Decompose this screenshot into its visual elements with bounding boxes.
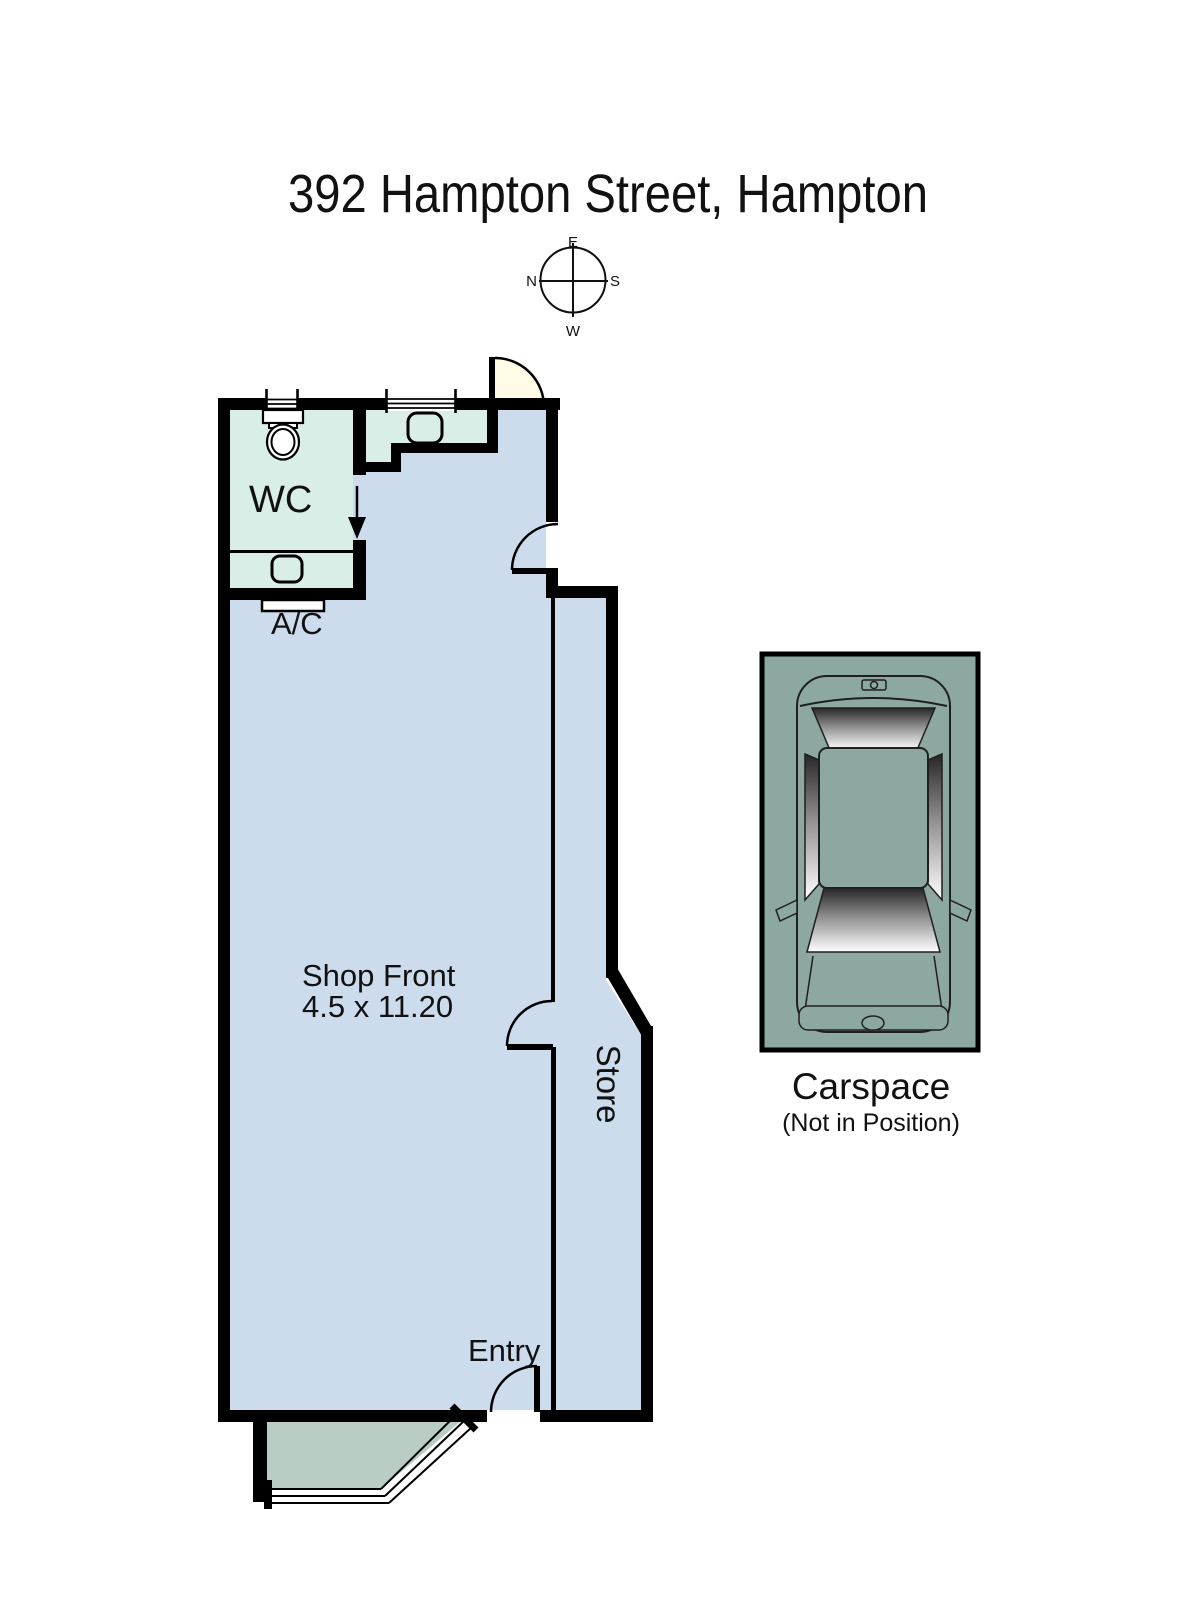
- shop-front-dimensions: 4.5 x 11.20: [302, 989, 453, 1024]
- vanity-bench-line: [230, 550, 353, 553]
- left-wall: [218, 398, 230, 1422]
- shop-front-label: Shop Front: [302, 958, 456, 993]
- car-icon: [776, 676, 971, 1032]
- wc-partition-lower: [353, 540, 366, 600]
- compass-label-right: S: [610, 273, 620, 290]
- carspace-note: (Not in Position): [782, 1109, 960, 1137]
- store-outer-wall-upper: [606, 586, 618, 978]
- bottom-wall-right: [540, 1410, 653, 1422]
- compass-label-left: N: [526, 273, 537, 290]
- page-title: 392 Hampton Street, Hampton: [288, 164, 928, 224]
- compass-label-top: E: [568, 234, 578, 251]
- carspace: Carspace (Not in Position): [762, 654, 978, 1137]
- kitchenette-step-wall-right: [391, 443, 498, 453]
- wc-label: WC: [249, 479, 312, 521]
- store-label: Store: [590, 1045, 627, 1124]
- compass-label-bottom: W: [566, 323, 581, 340]
- entry-porch-floor: [267, 1422, 460, 1489]
- top-door-jamb-wall: [487, 410, 498, 453]
- entry-label: Entry: [468, 1333, 541, 1368]
- store-outer-wall-lower: [641, 1026, 653, 1422]
- floorplan-page: 392 Hampton Street, Hampton E N S W: [0, 0, 1179, 1600]
- wc-bottom-wall: [218, 588, 362, 600]
- bottom-wall-left: [218, 1410, 487, 1422]
- compass: [539, 243, 608, 317]
- carspace-label: Carspace: [792, 1066, 950, 1107]
- window-kitchenette: [386, 389, 456, 413]
- floorplan-canvas: 392 Hampton Street, Hampton E N S W: [0, 0, 1179, 1600]
- right-wall-upper: [546, 398, 558, 522]
- store-partition-upper: [551, 598, 555, 1002]
- toilet-icon: [263, 410, 303, 460]
- store-partition-lower: [551, 1047, 556, 1410]
- ac-label: A/C: [271, 606, 323, 641]
